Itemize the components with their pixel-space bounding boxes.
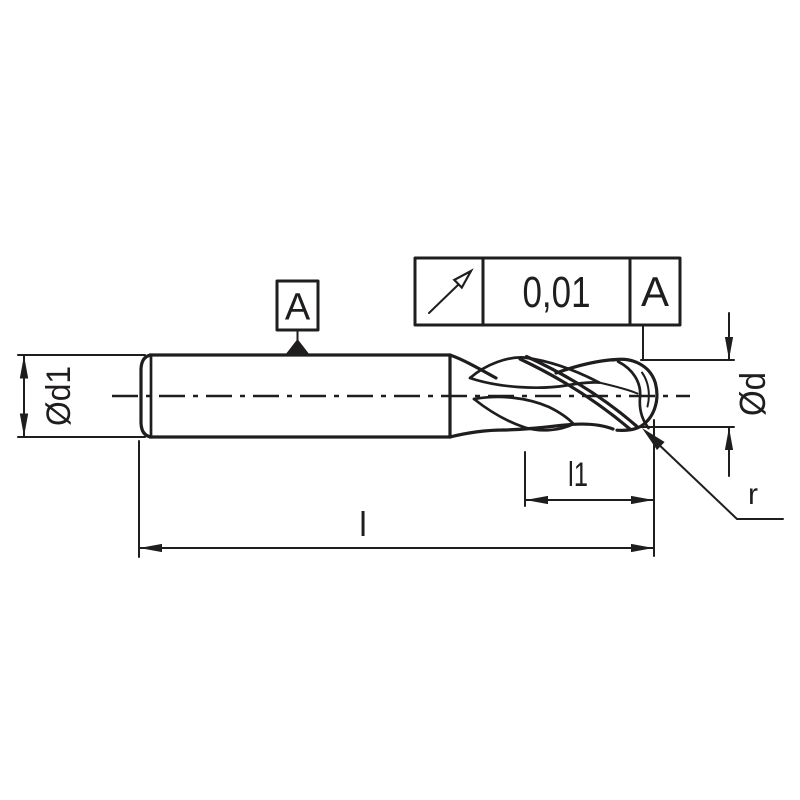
- helical-cutting-edge-a: [520, 359, 631, 430]
- arrowhead-down-icon: [20, 414, 28, 437]
- corner-radius-label: r: [748, 478, 758, 511]
- arrowhead-right-icon: [631, 496, 654, 504]
- tolerance-frame: 0,01 A: [415, 258, 680, 359]
- ball-nose-cutting-edge: [618, 362, 649, 429]
- neck-taper-bottom: [450, 430, 504, 437]
- tolerance-datum-ref: A: [641, 268, 669, 315]
- tolerance-value: 0,01: [523, 268, 591, 317]
- arrowhead-left-icon: [526, 496, 549, 504]
- datum-symbol: A: [277, 281, 318, 355]
- arrowhead-left-icon: [140, 544, 163, 552]
- arrowhead-down-icon: [725, 337, 733, 360]
- shank-diameter-label: Ød1: [40, 366, 78, 426]
- datum-letter: A: [285, 287, 311, 329]
- dimension-flute-length: l1: [525, 420, 654, 556]
- arrowhead-up-icon: [20, 356, 28, 379]
- arrowhead-right-icon: [631, 544, 654, 552]
- overall-length-label: l: [359, 506, 367, 544]
- circular-runout-icon: [429, 271, 471, 313]
- end-mill-drawing: A 0,01 A Ød1 Ød: [0, 0, 800, 800]
- flute-length-label: l1: [568, 456, 588, 494]
- arrowhead-up-icon: [725, 428, 733, 451]
- technical-drawing-canvas: A 0,01 A Ød1 Ød: [0, 0, 800, 800]
- datum-triangle-icon: [286, 339, 310, 355]
- radius-leader-line: [654, 440, 783, 519]
- flute-to-ball-connector: [599, 383, 638, 394]
- ball-nose-edge-land: [642, 373, 649, 407]
- cutting-diameter-label: Ød: [732, 372, 773, 416]
- radius-callout: r: [642, 428, 783, 519]
